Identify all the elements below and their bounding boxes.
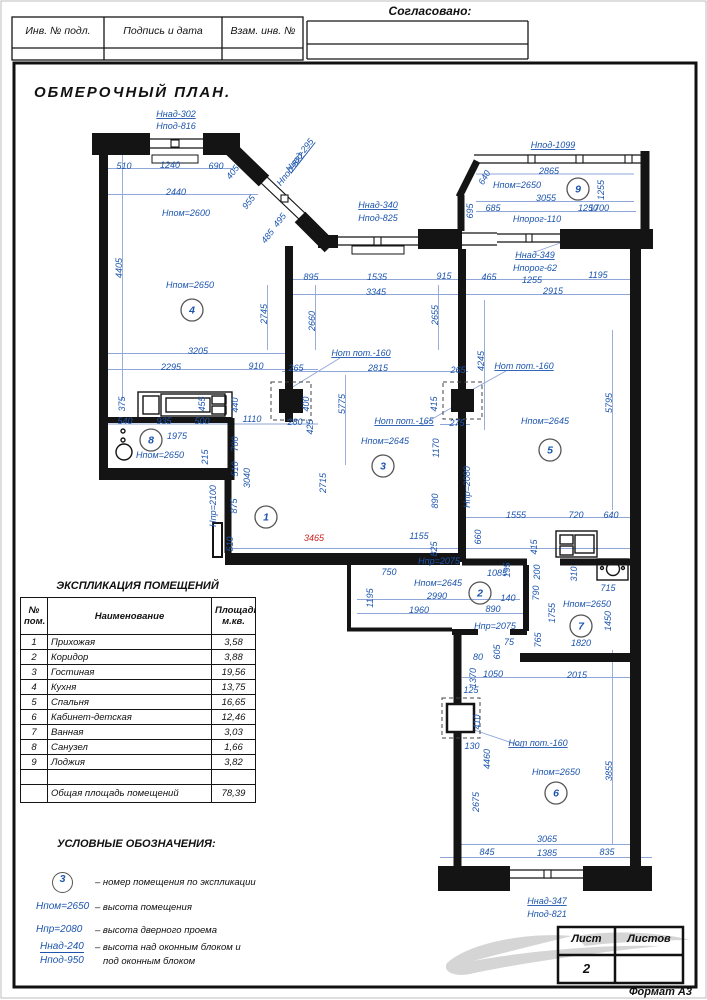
total-value: 78,39 [212, 785, 256, 803]
dimension-label: 3465 [304, 533, 325, 543]
dimension-label: 835 [599, 847, 615, 857]
dimension-label: 4460 [482, 749, 492, 769]
dimension-label: 875 [229, 498, 239, 514]
room-area-cell: 16,65 [212, 695, 256, 710]
dimension-label: 510 [116, 161, 131, 171]
table-row: 1Прихожая3,58 [21, 635, 256, 650]
legend-room-circle: 3 [52, 872, 73, 893]
dimension-label: 2715 [318, 472, 328, 494]
legend-title: УСЛОВНЫЕ ОБОЗНАЧЕНИЯ: [57, 838, 216, 850]
dimension-label: Ннад-347 [527, 896, 567, 906]
dimension-label: 400 [301, 396, 311, 411]
dimension-label: 200 [532, 564, 542, 580]
dimension-label: Нот пот.-160 [508, 738, 567, 748]
dimension-label: 440 [230, 397, 240, 412]
dimension-label: 825 [429, 541, 439, 557]
dimension-label: Нпом=2600 [162, 208, 210, 218]
dimension-label: 640 [603, 510, 618, 520]
dimension-label: 660 [473, 529, 483, 544]
dimension-label: 895 [303, 272, 319, 282]
dimension-label: 510 [225, 536, 235, 551]
total-empty-cell [21, 785, 48, 803]
col-header-area: Площадь м.кв. [212, 598, 256, 635]
dimension-label: Нпр=2075 [418, 556, 461, 566]
room-number-cell: 9 [21, 755, 48, 770]
dimension-label: 2440 [165, 187, 186, 197]
room-name-cell: Кабинет-детская [48, 710, 212, 725]
dimension-label: 1555 [506, 510, 527, 520]
room-number-cell: 1 [21, 635, 48, 650]
room-area-cell [212, 770, 256, 785]
dimension-label: 80 [473, 652, 483, 662]
dimension-label: 3040 [242, 468, 252, 488]
table-row [21, 770, 256, 785]
dimension-label: 2295 [160, 362, 182, 372]
table-row: 3Гостиная19,56 [21, 665, 256, 680]
room-number: 5 [547, 445, 553, 457]
dimension-label: 1755 [547, 602, 557, 623]
total-label: Общая площадь помещений [48, 785, 212, 803]
dimension-label: Нпорог-110 [513, 214, 561, 224]
dimension-label: Нпом=2650 [166, 280, 214, 290]
dimension-label: Нот пот.-160 [494, 361, 553, 371]
dimension-label: 890 [485, 604, 500, 614]
dimension-label: 2990 [426, 591, 447, 601]
dimension-label: 695 [465, 203, 475, 219]
dimension-label: 2015 [566, 670, 588, 680]
header-table-lines [12, 17, 528, 60]
dimension-label: 2815 [367, 363, 389, 373]
dimension-label: Нпом=2650 [136, 450, 184, 460]
dimension-label: 215 [200, 449, 210, 466]
toilet-fixture [116, 429, 132, 460]
legend-item-1-text: – номер помещения по экспликации [95, 877, 256, 888]
room-area-cell: 1,66 [212, 740, 256, 755]
table-row: 9Лоджия3,82 [21, 755, 256, 770]
dimension-label: 310 [569, 566, 579, 581]
room-name-cell: Коридор [48, 650, 212, 665]
dimension-label: Нпод-821 [527, 909, 566, 919]
explication-header-row: № пом. Наименование Площадь м.кв. [21, 598, 256, 635]
dimension-label: 715 [600, 583, 616, 593]
dimension-label: Нпр=2100 [208, 485, 218, 527]
dimension-label: 640 [476, 168, 492, 186]
dimension-label: 510 [230, 461, 240, 476]
col-header-number: № пом. [21, 598, 48, 635]
header-cell-inv: Инв. № подл. [14, 25, 102, 37]
header-cell-signdate: Подпись и дата [106, 25, 220, 37]
room-number-cell: 3 [21, 665, 48, 680]
dimension-label: Нпом=2650 [493, 180, 541, 190]
explication-title: ЭКСПЛИКАЦИЯ ПОМЕЩЕНИЙ [20, 580, 255, 592]
room-number: 4 [188, 305, 195, 317]
dimension-label: 2660 [307, 311, 317, 332]
room-area-cell: 12,46 [212, 710, 256, 725]
room-number-cell: 6 [21, 710, 48, 725]
dimension-label: 3855 [604, 760, 614, 781]
dimension-label: Нпр=2075 [474, 621, 517, 631]
table-row: 2Коридор3,88 [21, 650, 256, 665]
dimension-label: 500 [194, 416, 209, 426]
col-header-name: Наименование [48, 598, 212, 635]
room-number-cell: 5 [21, 695, 48, 710]
room-area-cell: 3,88 [212, 650, 256, 665]
legend-item-2-text: – высота помещения [95, 902, 192, 913]
door-jamb [213, 523, 222, 557]
dimension-label: 540 [117, 416, 132, 426]
dimension-label: 130 [464, 741, 479, 751]
header-cell-vzam: Взам. инв. № [224, 25, 302, 37]
dimension-label: Нпом=2645 [414, 578, 463, 588]
dimension-label: 1960 [409, 605, 429, 615]
dimension-label: 1535 [367, 272, 388, 282]
dimension-label: Ннад-349 [515, 250, 554, 260]
dimension-label: 280 [286, 417, 302, 427]
dimension-label: 455 [197, 396, 207, 412]
room-area-cell: 3,82 [212, 755, 256, 770]
dimension-label: 690 [208, 161, 223, 171]
dimension-label: Нпод-825 [358, 213, 398, 223]
explication-body: 1Прихожая3,582Коридор3,883Гостиная19,564… [21, 635, 256, 785]
legend-item-4-symbol: Ннад-240 [40, 941, 84, 953]
room-number: 9 [575, 184, 581, 196]
dimension-label: 915 [436, 271, 452, 281]
room-number: 8 [148, 435, 154, 447]
dimension-label: 750 [381, 567, 396, 577]
room-name-cell: Гостиная [48, 665, 212, 680]
table-row: 8Санузел1,66 [21, 740, 256, 755]
legend-item-4-text: – высота над оконным блоком и [95, 942, 241, 953]
dimension-label: 2655 [430, 304, 440, 326]
dimension-label: 790 [531, 585, 541, 600]
legend-item-2-symbol: Нпом=2650 [36, 901, 89, 912]
dimension-label: 1450 [603, 611, 613, 631]
dimension-label: 1255 [596, 179, 606, 200]
dimension-label: 685 [485, 203, 501, 213]
dimension-label: 1385 [537, 848, 558, 858]
dimension-label: 3055 [536, 193, 557, 203]
dimension-label: 375 [117, 396, 127, 412]
room-number: 6 [553, 788, 559, 800]
sheet-label: Лист [558, 933, 615, 945]
dimension-label: 5795 [604, 392, 614, 413]
dimension-label: Нпом=2650 [563, 599, 611, 609]
room-area-cell: 13,75 [212, 680, 256, 695]
dimension-label: Нпр=2080 [462, 466, 472, 508]
dimension-label: 1700 [589, 203, 609, 213]
dimension-label: 910 [248, 361, 263, 371]
dimension-label: 720 [568, 510, 583, 520]
room-area-cell: 19,56 [212, 665, 256, 680]
approved-label: Согласовано: [340, 4, 520, 18]
room-name-cell: Лоджия [48, 755, 212, 770]
entry-door [447, 704, 474, 732]
dimension-label: 845 [479, 847, 495, 857]
dimension-label: Нпом=2650 [532, 767, 580, 777]
table-row: 4Кухня13,75 [21, 680, 256, 695]
dimension-label: 2865 [538, 166, 560, 176]
drawing-sheet: Ннад-302Нпод-81651012406904052440Нпом=26… [0, 0, 707, 1000]
dimension-label: Нпом=2645 [361, 436, 410, 446]
dimension-label: Нпод-816 [156, 121, 195, 131]
room-number-cell [21, 770, 48, 785]
room-name-cell: Кухня [48, 680, 212, 695]
dimension-label: 2675 [471, 791, 481, 813]
dimension-label: Ннад-340 [358, 200, 397, 210]
dimension-label: 1255 [522, 275, 543, 285]
table-row: 7Ванная3,03 [21, 725, 256, 740]
dimension-label: 955 [240, 192, 258, 211]
dimension-label: 1110 [243, 414, 262, 424]
dimension-label: 1050 [483, 669, 503, 679]
room-number-cell: 7 [21, 725, 48, 740]
table-row: 6Кабинет-детская12,46 [21, 710, 256, 725]
dimension-label: 140 [500, 593, 515, 603]
room-name-cell [48, 770, 212, 785]
dimension-label: Нпом=2645 [521, 416, 570, 426]
plan-drawing: Ннад-302Нпод-81651012406904052440Нпом=26… [0, 0, 707, 1000]
room-number: 7 [578, 621, 585, 633]
dimension-label: Нпод-1099 [531, 140, 575, 150]
dimension-label: 3205 [188, 346, 209, 356]
dimension-label: 465 [481, 272, 497, 282]
room-name-cell: Прихожая [48, 635, 212, 650]
dimension-label: 495 [271, 210, 289, 229]
dimension-label: 1155 [409, 531, 429, 541]
legend-item-3-symbol: Нпр=2080 [36, 924, 82, 935]
page-title: ОБМЕРОЧНЫЙ ПЛАН. [34, 84, 231, 101]
appliance-fixtures [556, 531, 628, 580]
room-number-cell: 2 [21, 650, 48, 665]
dimension-label: 265 [449, 365, 466, 375]
dimension-label: 5775 [337, 393, 347, 414]
dimension-label: 1195 [588, 270, 608, 280]
explication-total-row: Общая площадь помещений 78,39 [21, 785, 256, 803]
room-number-cell: 4 [21, 680, 48, 695]
dimension-label: Нпод-822 [275, 151, 307, 188]
room-number: 1 [263, 512, 269, 524]
table-row: 5Спальня16,65 [21, 695, 256, 710]
dimension-label: 935 [156, 416, 172, 426]
dimension-label: 1820 [571, 638, 591, 648]
dimension-label: 1240 [160, 160, 180, 170]
room-name-cell: Санузел [48, 740, 212, 755]
dimension-label: Нот пот.-160 [331, 348, 390, 358]
legend-item-4-symbol2: Нпод-950 [40, 955, 84, 966]
room-number: 3 [380, 461, 386, 473]
dimension-label: 2915 [542, 286, 564, 296]
dimension-label: 410 [472, 714, 482, 729]
legend-item-3-text: – высота дверного проема [95, 925, 217, 936]
dimension-label: 265 [287, 363, 304, 373]
dimension-label: 605 [492, 644, 502, 660]
dimension-label: 765 [533, 632, 543, 648]
dimension-label: 1195 [365, 587, 375, 607]
dimension-label: 425 [305, 419, 315, 435]
room-number-cell: 8 [21, 740, 48, 755]
dimension-label: 700 [230, 436, 240, 451]
dimension-label: Нот пот.-165 [374, 416, 434, 426]
dimension-label: 485 [259, 226, 277, 245]
dimension-label: 4405 [114, 257, 124, 278]
dimension-label: 415 [429, 396, 439, 412]
dimension-label: 195 [502, 562, 512, 578]
dimension-label: 3345 [366, 287, 387, 297]
dimension-label: 1975 [167, 431, 188, 441]
dimension-label: 125 [463, 685, 479, 695]
dimension-label: 890 [430, 493, 440, 508]
sheet-number: 2 [558, 961, 615, 976]
dimension-label: 75 [504, 637, 515, 647]
room-area-cell: 3,58 [212, 635, 256, 650]
dimension-label: 415 [529, 539, 539, 555]
dimension-label: 3065 [537, 834, 558, 844]
room-name-cell: Спальня [48, 695, 212, 710]
dimension-label: Нпорог-62 [513, 263, 557, 273]
dimension-label: Ннад-302 [156, 109, 195, 119]
legend-item-4-text2: под оконным блоком [103, 956, 195, 967]
dimension-label: 2745 [259, 303, 269, 325]
dimension-label: 275 [448, 418, 465, 428]
room-name-cell: Ванная [48, 725, 212, 740]
kitchen-counter [138, 392, 232, 418]
room-area-cell: 3,03 [212, 725, 256, 740]
format-label: Формат А3 [600, 986, 692, 998]
dimension-label: 4245 [476, 350, 486, 371]
sheets-label: Листов [615, 933, 683, 945]
explication-table: № пом. Наименование Площадь м.кв. 1Прихо… [20, 597, 256, 803]
room-number: 2 [476, 588, 483, 600]
dimension-label: 1170 [431, 438, 441, 457]
